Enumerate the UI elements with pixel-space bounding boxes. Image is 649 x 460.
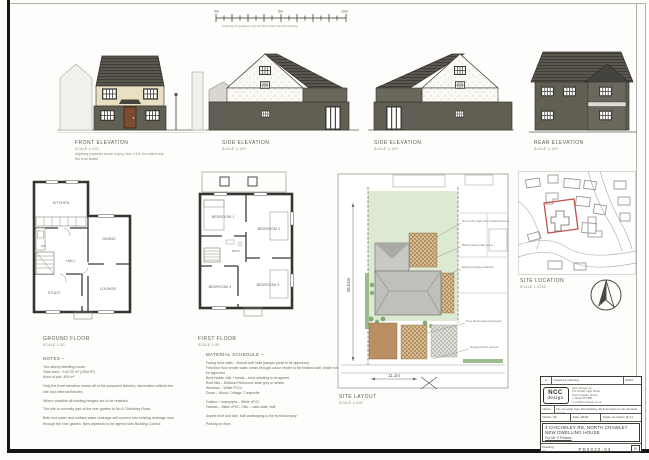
rear-elevation-title: REAR ELEVATION: [534, 140, 644, 146]
front-elevation-drawing: [56, 34, 206, 140]
window: [143, 88, 158, 99]
company-address: NCC Design Ltd The Studio, High Street N…: [570, 385, 641, 405]
front-elevation-title: FRONT ELEVATION: [75, 140, 205, 146]
drawing-sheet: 0m 5m 10m Scale bar for guidance only. D…: [0, 0, 649, 460]
revision-box: B: [631, 445, 640, 453]
room-label-bath: BATH: [232, 249, 240, 253]
site-annotation: Dropped kerb access: [470, 345, 499, 349]
notes-block: NOTES – Two storey dwelling house. Total…: [43, 356, 179, 427]
chimney: [248, 177, 257, 186]
scale-value: As shown @ A1: [612, 415, 633, 419]
scale-bar-end: 10m: [341, 10, 348, 14]
rear-elevation-label: REAR ELEVATION SCALE 1:100: [534, 140, 644, 151]
rear-band: [588, 102, 626, 107]
notes-line: Both foul water and surface water draina…: [43, 416, 179, 427]
room-label-hall: HALL: [66, 259, 76, 263]
room-label-bed4: BEDROOM 4: [209, 285, 232, 289]
verge-strip: [463, 359, 503, 363]
first-floor-scale: SCALE 1:50: [198, 343, 318, 347]
scale-bar: 0m 5m 10m Scale bar for guidance only. D…: [214, 9, 350, 33]
window: [259, 66, 271, 75]
door-knob: [133, 117, 134, 118]
side-elevation-1-drawing: [203, 38, 361, 140]
room-label-bed2: BEDROOM 2: [258, 227, 281, 231]
scale-bar-mid: 5m: [278, 10, 283, 14]
date-label: Date:: [573, 415, 580, 419]
logo-text-bottom: design: [547, 395, 563, 400]
side2-upper-wall: [376, 88, 422, 102]
titleblock-notes-row: Notes: Do not scale from this drawing. A…: [541, 406, 641, 414]
project-title-row: 4 CHICHELEY RD, NORTH CRAWLEY NEW DWELLI…: [541, 422, 641, 444]
notes-value: Do not scale from this drawing. All dime…: [555, 406, 641, 413]
site-location-map: [518, 171, 636, 275]
material-line: Aspect front and side, buff landscaping …: [206, 414, 356, 419]
side1-upper-wall: [303, 88, 347, 102]
drawing-number-label: Drawing No:: [541, 444, 560, 454]
rear-elevation-drawing: [527, 38, 639, 140]
window: [563, 87, 576, 97]
scale-label: Scale:: [603, 415, 611, 419]
site-annotation: Existing hedge retained: [462, 265, 494, 269]
window: [599, 87, 612, 97]
side1-gable-wall: [227, 88, 303, 102]
ground-floor-plan: KITCHEN DINING HALL STUDY LOUNGE WC: [26, 176, 138, 324]
glazed-door-pane: [336, 108, 340, 129]
side2-elevation-title: SIDE ELEVATION: [374, 140, 484, 146]
revision-letter: A: [541, 377, 552, 384]
front-elevation-label: FRONT ELEVATION SCALE 1:100 Adjoining pr…: [75, 140, 205, 162]
glazed-door-pane: [397, 108, 401, 129]
site-layout-title: SITE LAYOUT: [339, 394, 449, 400]
dim-height-label: 28.04m: [346, 277, 351, 292]
rear-elevation-scale: SCALE 1:100: [534, 147, 644, 151]
material-line: Parking on drive.: [206, 422, 356, 427]
drawn-value: NC: [553, 415, 557, 419]
hedge-strip: [365, 273, 369, 329]
neighbour-house-left: [60, 64, 92, 130]
dim-width-label: 11.1m: [388, 373, 400, 378]
window: [454, 66, 466, 75]
window: [100, 110, 115, 121]
site-layout-drawing: 28.04m 11.1m New 1.8m high close boarded…: [337, 173, 509, 393]
front-roof: [96, 56, 164, 86]
drawing-number-value: PD5020-03: [560, 447, 630, 452]
first-floor-title: FIRST FLOOR: [198, 336, 318, 342]
site-layout-scale: SCALE 1:200: [339, 401, 449, 405]
logo-row: NCC design NCC Design Ltd The Studio, Hi…: [541, 385, 641, 406]
date-value: 06/20: [581, 415, 589, 419]
window: [261, 111, 270, 118]
side1-elevation-scale: SCALE 1:100: [222, 147, 332, 151]
room-label-lounge: LOUNGE: [100, 287, 117, 291]
fields-row: Drawn: NC Date: 06/20 Scale: As shown @ …: [541, 414, 641, 422]
patio-hatch: [409, 233, 437, 267]
front-elevation-scale: SCALE 1:100: [75, 147, 205, 151]
window: [260, 81, 270, 89]
first-floor-plan: BEDROOM 1 BEDROOM 2 BEDROOM 3 BEDROOM 4 …: [190, 170, 302, 324]
window: [455, 81, 465, 89]
front-door: [124, 107, 136, 128]
site-layout-label: SITE LAYOUT SCALE 1:200: [339, 394, 449, 405]
side1-elevation-title: SIDE ELEVATION: [222, 140, 332, 146]
room-label-bed3: BEDROOM 3: [257, 283, 280, 287]
roof-outline: [202, 172, 286, 192]
window: [541, 87, 554, 97]
first-floor-label: FIRST FLOOR SCALE 1:50: [198, 336, 318, 347]
material-line: Fascias – Black uPVC. Cills – rustic sla…: [206, 405, 356, 410]
company-logo: NCC design: [543, 387, 569, 404]
sheet-border-right-outer: [645, 3, 646, 449]
notes-label: Notes:: [541, 406, 555, 413]
side-elevation-2-drawing: [366, 38, 516, 140]
glazed-door-pane: [392, 108, 396, 129]
scale-bar-caption: Scale bar for guidance only. DO NOT scal…: [222, 24, 298, 28]
glazed-door-pane: [331, 108, 335, 129]
room-label-wc: WC: [41, 244, 47, 248]
room-label-study: STUDY: [48, 291, 61, 295]
sheet-edge-left: [7, 0, 10, 452]
window: [145, 110, 160, 121]
glazed-door-pane: [388, 108, 392, 129]
drawing-number-row: Drawing No: PD5020-03 B: [541, 444, 641, 454]
notes-line: Area of plot: 400 m²: [43, 375, 179, 380]
door-canopy: [119, 100, 141, 105]
front-elevation-note2: Not to be scaled: [75, 157, 205, 161]
site-annotation: New block paved driveway: [466, 319, 502, 323]
window: [455, 111, 464, 118]
front-elevation-note1: Adjoining properties shown in grey, Nos.…: [75, 152, 205, 156]
sheet-border-top: [10, 3, 646, 4]
neighbour-house-right: [192, 72, 203, 130]
project-line3: For Mr C Pearce: [545, 436, 637, 440]
north-arrow-icon: [587, 276, 625, 314]
drawn-label: Drawn:: [543, 415, 553, 419]
notes-title: NOTES –: [43, 356, 179, 363]
side2-gable-wall: [422, 88, 498, 102]
project-line2: NEW DWELLING HOUSE: [545, 430, 637, 435]
paving-grey: [431, 325, 457, 357]
ground-floor-label: GROUND FLOOR SCALE 1:50: [43, 336, 163, 347]
notes-line: Only the front elevation shows all of th…: [43, 384, 179, 395]
side2-elevation-scale: SCALE 1:100: [374, 147, 484, 151]
room-label-dining: DINING: [102, 237, 115, 241]
scale-bar-zero: 0m: [214, 10, 219, 14]
driveway-block: [369, 323, 397, 359]
material-schedule-block: MATERIAL SCHEDULE – Facing brick walls –…: [206, 352, 356, 427]
address-line: e: info@nccdesign.co.uk: [572, 401, 639, 405]
chimney: [220, 177, 229, 186]
revision-date: 06/20: [624, 377, 641, 384]
scale-field: Scale: As shown @ A1: [601, 414, 641, 421]
window: [599, 111, 612, 121]
driveway-hatch: [401, 325, 427, 359]
notes-line: Where possible all existing hedges are t…: [43, 399, 179, 404]
material-schedule-title: MATERIAL SCHEDULE –: [206, 352, 356, 359]
path-hatch: [441, 273, 454, 313]
ground-floor-scale: SCALE 1:50: [43, 343, 163, 347]
date-field: Date: 06/20: [571, 414, 601, 421]
building-footprint: [375, 271, 441, 315]
room-label-kitchen: KITCHEN: [53, 201, 70, 205]
glazed-door-pane: [327, 108, 331, 129]
revision-description: Issued for planning: [552, 377, 624, 384]
room-label-bed1: BEDROOM 1: [212, 215, 235, 219]
window: [102, 88, 117, 99]
material-line: First floor front render walls: cream th…: [206, 366, 356, 376]
lamp-head: [175, 93, 178, 96]
drawn-field: Drawn: NC: [541, 414, 571, 421]
site-annotation: New 1.8m high close boarded fence: [462, 219, 509, 223]
ground-floor-title: GROUND FLOOR: [43, 336, 163, 342]
site-annotation: Block paved patio area: [462, 243, 493, 247]
revision-row: A Issued for planning 06/20: [541, 377, 641, 385]
window: [541, 111, 554, 121]
project-title-box: 4 CHICHELEY RD, NORTH CRAWLEY NEW DWELLI…: [542, 423, 640, 442]
title-block: A Issued for planning 06/20 NCC design N…: [540, 376, 642, 452]
side2-elevation-label: SIDE ELEVATION SCALE 1:100: [374, 140, 484, 151]
notes-line: The site is currently part of the rear g…: [43, 407, 179, 412]
material-line: Doors – Wood, Cottage, Composite: [206, 391, 356, 396]
side1-elevation-label: SIDE ELEVATION SCALE 1:100: [222, 140, 332, 151]
